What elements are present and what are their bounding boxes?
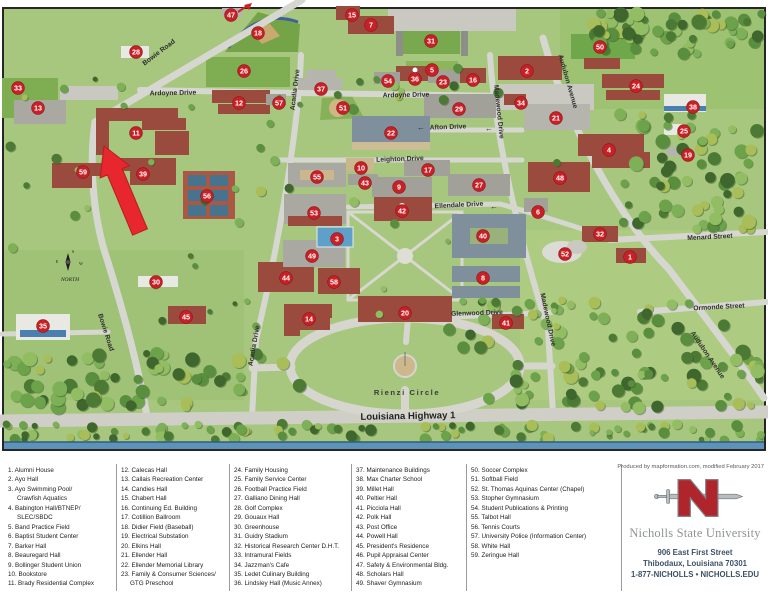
address-line-2: Thibodaux, Louisiana 70301	[622, 558, 768, 569]
map-marker-27: 27	[473, 179, 486, 192]
legend-item: 4. Babington Hall/BTNEP/ SLEC/SBDC	[8, 504, 114, 523]
legend-item: 41. Picciola Hall	[356, 504, 466, 513]
legend-item: 2. Ayo Hall	[8, 475, 114, 484]
svg-text:17: 17	[424, 166, 432, 175]
svg-text:26: 26	[240, 67, 248, 76]
map-marker-13: 13	[32, 102, 45, 115]
legend: 1. Alumni House2. Ayo Hall3. Ayo Swimmin…	[0, 452, 768, 603]
legend-column-3: 24. Family Housing25. Family Service Cen…	[234, 466, 351, 589]
map-marker-33: 33	[12, 82, 25, 95]
svg-text:32: 32	[596, 230, 604, 239]
svg-text:1: 1	[628, 253, 632, 262]
svg-text:52: 52	[561, 250, 569, 259]
legend-column-2: 12. Calecas Hall13. Callais Recreation C…	[121, 466, 231, 589]
map-marker-15: 15	[346, 9, 359, 22]
bayou-water	[4, 442, 764, 449]
svg-text:E: E	[56, 259, 59, 264]
svg-text:50: 50	[596, 43, 604, 52]
campus-map-page: S W E NORTH Bowie RoadBowie RoadArdoyne …	[0, 0, 768, 603]
svg-text:30: 30	[152, 278, 160, 287]
map-marker-53: 53	[308, 207, 321, 220]
map-marker-36: 36	[409, 73, 422, 86]
svg-text:16: 16	[469, 76, 477, 85]
road-label: ←	[490, 202, 498, 211]
legend-divider	[116, 464, 117, 591]
svg-text:58: 58	[330, 278, 338, 287]
legend-item: 20. Elkins Hall	[121, 542, 231, 551]
legend-item: 19. Electrical Substation	[121, 532, 231, 541]
map-marker-7: 7	[365, 19, 378, 32]
svg-text:10: 10	[357, 164, 365, 173]
svg-text:12: 12	[235, 99, 243, 108]
legend-item: 17. Cotillion Ballroom	[121, 513, 231, 522]
svg-text:9: 9	[397, 183, 401, 192]
map-marker-39: 39	[137, 168, 150, 181]
road-label: Rienzi Circle	[374, 388, 440, 397]
map-marker-21: 21	[550, 112, 563, 125]
legend-item: 54. Student Publications & Printing	[471, 504, 619, 513]
address-line-3: 1-877-NICHOLLS • NICHOLLS.EDU	[622, 569, 768, 580]
legend-item: 57. University Police (Information Cente…	[471, 532, 619, 541]
svg-text:24: 24	[632, 82, 640, 91]
legend-item: 12. Calecas Hall	[121, 466, 231, 475]
svg-text:23: 23	[439, 78, 447, 87]
legend-item: 27. Galliano Dining Hall	[234, 494, 351, 503]
map-marker-24: 24	[630, 80, 643, 93]
svg-text:55: 55	[313, 173, 321, 182]
map-marker-14: 14	[303, 313, 316, 326]
legend-item: 3. Ayo Swimming Pool/ Crawfish Aquatics	[8, 485, 114, 504]
legend-item: 6. Baptist Student Center	[8, 532, 114, 541]
map-marker-55: 55	[311, 171, 324, 184]
map-marker-29: 29	[453, 103, 466, 116]
legend-item: 50. Soccer Complex	[471, 466, 619, 475]
svg-text:57: 57	[275, 99, 283, 108]
svg-text:45: 45	[182, 313, 190, 322]
svg-text:54: 54	[384, 77, 392, 86]
svg-text:3: 3	[335, 235, 339, 244]
legend-item: 46. Pupil Appraisal Center	[356, 551, 466, 560]
map-marker-47: 47	[225, 9, 238, 22]
svg-text:56: 56	[203, 192, 211, 201]
map-marker-23: 23	[437, 76, 450, 89]
legend-item: 21. Ellender Hall	[121, 551, 231, 560]
svg-text:19: 19	[684, 151, 692, 160]
legend-item: 52. St. Thomas Aquinas Center (Chapel)	[471, 485, 619, 494]
map-marker-16: 16	[467, 74, 480, 87]
map-marker-31: 31	[425, 35, 438, 48]
map-marker-9: 9	[393, 181, 406, 194]
svg-text:22: 22	[387, 129, 395, 138]
map-marker-17: 17	[422, 164, 435, 177]
svg-text:7: 7	[369, 21, 373, 30]
svg-text:21: 21	[552, 114, 560, 123]
map-marker-56: 56	[201, 190, 214, 203]
map-marker-25: 25	[678, 125, 691, 138]
map-marker-35: 35	[37, 320, 50, 333]
legend-item: 32. Historical Research Center D.H.T.	[234, 542, 351, 551]
map-marker-11: 11	[130, 127, 143, 140]
svg-text:25: 25	[680, 127, 688, 136]
svg-text:40: 40	[479, 232, 487, 241]
legend-divider	[351, 464, 352, 591]
address-line-1: 906 East First Street	[622, 547, 768, 558]
legend-item: 35. Ledet Culinary Building	[234, 570, 351, 579]
legend-item: 1. Alumni House	[8, 466, 114, 475]
road-label: Ardoyne Drive	[383, 92, 430, 100]
legend-item: 58. White Hall	[471, 542, 619, 551]
legend-item: 11. Brady Residential Complex	[8, 579, 114, 588]
legend-item: 25. Family Service Center	[234, 475, 351, 484]
svg-text:11: 11	[132, 129, 140, 138]
svg-text:49: 49	[308, 252, 316, 261]
map-marker-40: 40	[477, 230, 490, 243]
svg-text:37: 37	[317, 85, 325, 94]
legend-item: 24. Family Housing	[234, 466, 351, 475]
legend-item: 42. Polk Hall	[356, 513, 466, 522]
svg-text:2: 2	[525, 67, 529, 76]
map-marker-30: 30	[150, 276, 163, 289]
legend-item: 14. Candies Hall	[121, 485, 231, 494]
legend-item: 5. Band Practice Field	[8, 523, 114, 532]
legend-item: 28. Golf Complex	[234, 504, 351, 513]
svg-text:38: 38	[689, 103, 697, 112]
legend-item: 45. President's Residence	[356, 542, 466, 551]
map-marker-18: 18	[252, 27, 265, 40]
legend-item: 48. Scholars Hall	[356, 570, 466, 579]
legend-item: 18. Didier Field (Baseball)	[121, 523, 231, 532]
map-marker-43: 43	[359, 177, 372, 190]
map-marker-6: 6	[532, 206, 545, 219]
legend-item: 33. Intramural Fields	[234, 551, 351, 560]
map-marker-54: 54	[382, 75, 395, 88]
svg-text:44: 44	[282, 274, 290, 283]
legend-item: 16. Continuing Ed. Building	[121, 504, 231, 513]
legend-item: 39. Millet Hall	[356, 485, 466, 494]
svg-text:33: 33	[14, 84, 22, 93]
svg-text:53: 53	[310, 209, 318, 218]
map-marker-5: 5	[426, 64, 439, 77]
map-marker-12: 12	[233, 97, 246, 110]
svg-text:59: 59	[79, 168, 87, 177]
svg-text:31: 31	[427, 37, 435, 46]
legend-divider	[229, 464, 230, 591]
svg-text:34: 34	[517, 99, 525, 108]
road-label: Ardoyne Drive	[150, 90, 197, 98]
svg-text:6: 6	[536, 208, 540, 217]
map-marker-37: 37	[315, 83, 328, 96]
legend-item: 43. Post Office	[356, 523, 466, 532]
legend-item: 56. Tennis Courts	[471, 523, 619, 532]
svg-text:18: 18	[254, 29, 262, 38]
map-marker-1: 1	[624, 251, 637, 264]
svg-text:48: 48	[556, 174, 564, 183]
svg-text:W: W	[79, 261, 83, 266]
nicholls-logo	[652, 474, 744, 522]
svg-text:15: 15	[348, 11, 356, 20]
university-name: Nicholls State University	[622, 526, 768, 541]
map-marker-48: 48	[554, 172, 567, 185]
legend-item: 44. Powell Hall	[356, 532, 466, 541]
map-marker-3: 3	[331, 233, 344, 246]
svg-text:28: 28	[132, 48, 140, 57]
legend-item: 40. Peltier Hall	[356, 494, 466, 503]
svg-text:42: 42	[398, 207, 406, 216]
legend-item: 7. Barker Hall	[8, 542, 114, 551]
legend-item: 22. Ellender Memorial Library	[121, 561, 231, 570]
legend-column-4: 37. Maintenance Buildings38. Max Charter…	[356, 466, 466, 589]
legend-item: 8. Beauregard Hall	[8, 551, 114, 560]
legend-item: 29. Gouaux Hall	[234, 513, 351, 522]
legend-item: 26. Football Practice Field	[234, 485, 351, 494]
svg-text:41: 41	[502, 319, 510, 328]
map-marker-51: 51	[337, 102, 350, 115]
legend-item: 15. Chabert Hall	[121, 494, 231, 503]
svg-text:47: 47	[227, 11, 235, 20]
map-marker-38: 38	[687, 101, 700, 114]
map-marker-42: 42	[396, 205, 409, 218]
map-marker-22: 22	[385, 127, 398, 140]
university-address: 906 East First Street Thibodaux, Louisia…	[622, 547, 768, 580]
legend-column-5: 50. Soccer Complex51. Softball Field52. …	[471, 466, 619, 561]
svg-text:5: 5	[430, 66, 434, 75]
legend-column-1: 1. Alumni House2. Ayo Hall3. Ayo Swimmin…	[8, 466, 114, 589]
svg-text:8: 8	[481, 274, 485, 283]
legend-item: 38. Max Charter School	[356, 475, 466, 484]
legend-item: 34. Jazzman's Cafe	[234, 561, 351, 570]
svg-text:27: 27	[475, 181, 483, 190]
svg-text:13: 13	[34, 104, 42, 113]
map-marker-52: 52	[559, 248, 572, 261]
map-marker-2: 2	[521, 65, 534, 78]
legend-item: 53. Stopher Gymnasium	[471, 494, 619, 503]
map-marker-45: 45	[180, 311, 193, 324]
map-marker-28: 28	[130, 46, 143, 59]
map-marker-19: 19	[682, 149, 695, 162]
map-marker-44: 44	[280, 272, 293, 285]
campus-map-illustration: S W E NORTH Bowie RoadBowie RoadArdoyne …	[0, 0, 768, 455]
map-marker-59: 59	[77, 166, 90, 179]
legend-divider	[466, 464, 467, 591]
map-marker-50: 50	[594, 41, 607, 54]
legend-item: 51. Softball Field	[471, 475, 619, 484]
legend-item: 13. Callais Recreation Center	[121, 475, 231, 484]
map-marker-20: 20	[399, 307, 412, 320]
road-label: Louisiana Highway 1	[360, 410, 456, 423]
legend-item: 9. Bollinger Student Union	[8, 561, 114, 570]
svg-text:35: 35	[39, 322, 47, 331]
legend-item: 10. Bookstore	[8, 570, 114, 579]
legend-item: 30. Greenhouse	[234, 523, 351, 532]
map-marker-41: 41	[500, 317, 513, 330]
svg-text:14: 14	[305, 315, 313, 324]
map-marker-32: 32	[594, 228, 607, 241]
legend-item: 31. Guidry Stadium	[234, 532, 351, 541]
svg-text:4: 4	[607, 146, 611, 155]
map-marker-57: 57	[273, 97, 286, 110]
legend-item: 59. Zeringue Hall	[471, 551, 619, 560]
svg-text:43: 43	[361, 179, 369, 188]
legend-item: 37. Maintenance Buildings	[356, 466, 466, 475]
legend-item: 55. Talbot Hall	[471, 513, 619, 522]
road-label: Afton Drive	[430, 123, 467, 131]
svg-text:20: 20	[401, 309, 409, 318]
svg-text:36: 36	[411, 75, 419, 84]
map-marker-8: 8	[477, 272, 490, 285]
svg-text:29: 29	[455, 105, 463, 114]
map-marker-58: 58	[328, 276, 341, 289]
map-marker-4: 4	[603, 144, 616, 157]
legend-item: 49. Shaver Gymnasium	[356, 579, 466, 588]
map-marker-34: 34	[515, 97, 528, 110]
map-credit: Produced by mapformation.com, modified F…	[617, 464, 764, 470]
map-marker-10: 10	[355, 162, 368, 175]
svg-text:51: 51	[339, 104, 347, 113]
map-marker-49: 49	[306, 250, 319, 263]
compass-label: NORTH	[60, 277, 80, 283]
legend-item: 36. Lindsley Hall (Music Annex)	[234, 579, 351, 588]
legend-item: 47. Safety & Environmental Bldg.	[356, 561, 466, 570]
legend-item: 23. Family & Consumer Sciences/ GTG Pres…	[121, 570, 231, 589]
road-label: ←	[417, 123, 425, 132]
road-label: ←	[485, 124, 493, 133]
map-marker-26: 26	[238, 65, 251, 78]
svg-text:39: 39	[139, 170, 147, 179]
